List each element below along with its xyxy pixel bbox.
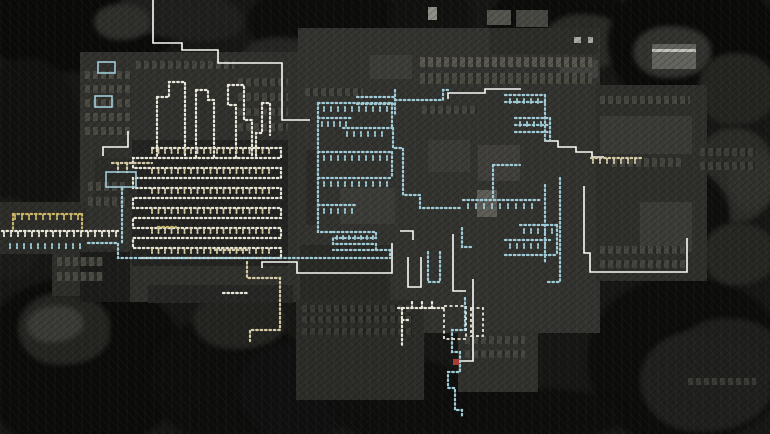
comb-row-cyan <box>324 182 387 186</box>
belt-line-cyan <box>462 228 472 247</box>
comb-row-cream <box>152 209 269 213</box>
comb-row-cream <box>152 169 269 173</box>
wall-line-solid <box>408 257 421 287</box>
belt-line-white <box>157 82 185 158</box>
comb-row-cyan <box>324 209 352 213</box>
comb-row-cyan <box>324 107 387 111</box>
comb-row-cyan <box>347 132 382 136</box>
belt-line-cyan <box>548 178 560 282</box>
belt-line-white <box>262 103 270 135</box>
wall-line-solid <box>453 234 466 291</box>
comb-row-cream <box>152 229 269 233</box>
wall-line-solid <box>400 231 413 240</box>
comb-row-cyan <box>10 244 80 249</box>
ghost-outline-box <box>444 306 466 339</box>
belt-line-cyan <box>376 250 390 258</box>
comb-row-cyan <box>324 156 387 160</box>
map-viewport[interactable] <box>0 0 770 434</box>
wall-line-solid <box>103 131 128 156</box>
comb-row-cyan <box>524 229 552 233</box>
comb-row-cyan <box>322 122 346 126</box>
comb-row-cyan <box>337 236 373 239</box>
belt-line-cream <box>247 262 280 341</box>
comb-row-cream <box>591 158 641 163</box>
comb-row-cyan <box>468 204 532 209</box>
belt-line-cyan <box>333 232 376 250</box>
comb-row-cyan <box>510 244 545 248</box>
belt-line-white <box>133 148 281 258</box>
network-overlay <box>0 0 770 434</box>
comb-row-cream <box>152 249 269 253</box>
belt-line-cyan <box>448 298 465 418</box>
comb-row-yellow <box>13 214 82 220</box>
tank-outline-box <box>106 172 136 187</box>
belt-line-cyan <box>428 252 440 282</box>
comb-row-white <box>2 231 120 237</box>
belt-line-cyan <box>393 128 460 208</box>
tank-outline-box <box>95 96 112 107</box>
belt-line-cyan <box>395 90 448 100</box>
wall-line-solid <box>153 0 310 120</box>
tank-outline-box <box>98 62 115 73</box>
wall-line-solid <box>584 186 687 272</box>
alert-marker <box>453 359 459 365</box>
comb-row-cream <box>152 189 269 193</box>
wall-line-solid <box>544 141 604 157</box>
